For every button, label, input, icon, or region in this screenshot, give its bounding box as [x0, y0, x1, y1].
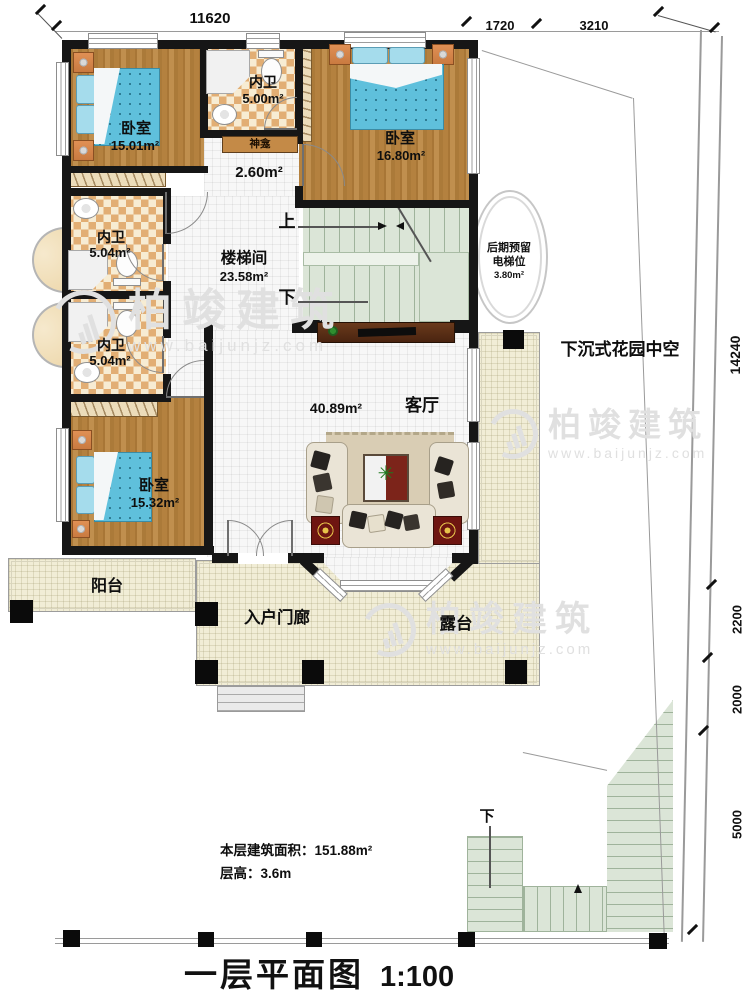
door-leaf	[264, 128, 297, 130]
nightstand	[72, 520, 90, 538]
label-stair-down: 下	[276, 288, 298, 308]
label-bath-low-name: 内卫	[81, 337, 141, 354]
sofa-cushion	[349, 511, 368, 530]
outdoor-stair-void	[523, 752, 607, 886]
bed-pillow	[352, 47, 388, 64]
label-elevator-line2: 电梯位	[474, 256, 544, 270]
label-bath-mid-name: 内卫	[81, 229, 141, 246]
sink-bath-top	[212, 104, 237, 125]
dim-label-3210: 3210	[568, 18, 620, 34]
dim-label-5000: 5000	[730, 802, 745, 848]
dim-label-2200: 2200	[730, 597, 745, 643]
dim-label-2000: 2000	[730, 677, 745, 723]
window-bedroom1-top	[88, 33, 158, 49]
label-bedroom3-name: 卧室	[122, 477, 186, 495]
sofa-cushion	[315, 495, 334, 514]
label-outdoor-stair-down: 下	[476, 808, 498, 826]
bed-pillow	[76, 456, 95, 484]
label-bath-mid-area: 5.04m²	[78, 245, 142, 261]
nightstand	[329, 44, 351, 65]
column	[503, 330, 524, 349]
label-stairhall-name: 楼梯间	[202, 250, 286, 269]
column	[10, 600, 33, 623]
watermark-url: www.baijunjz.com	[548, 445, 708, 461]
label-bath-low-area: 5.04m²	[78, 353, 142, 369]
label-stairhall-area: 23.58m²	[204, 269, 284, 285]
wall-stair-top	[295, 200, 478, 208]
site-line-bottom-1	[55, 938, 669, 939]
porch-steps	[217, 686, 305, 712]
column	[649, 933, 667, 949]
side-table-right	[433, 516, 462, 545]
shrine-table: 神龛	[222, 136, 298, 153]
wall-bedroom3-bottom	[62, 546, 214, 555]
wall-bath-mid-top	[62, 188, 170, 196]
label-stair-up: 上	[276, 212, 298, 232]
window-bath-top	[246, 33, 280, 49]
nightstand	[73, 140, 94, 161]
site-line-diag-top	[482, 50, 633, 99]
summary-area: 本层建筑面积：151.88m²	[220, 843, 440, 859]
label-living-name: 客厅	[390, 396, 454, 416]
window-bedroom2-right	[467, 58, 480, 174]
watermark-brand: 柏竣建筑	[548, 408, 708, 443]
summary-floor-height: 层高：3.6m	[220, 866, 380, 882]
label-balcony: 阳台	[75, 577, 139, 596]
toilet-tank	[113, 302, 141, 310]
label-bedroom2-area: 16.80m²	[360, 148, 442, 164]
nightstand	[432, 44, 454, 65]
sofa-cushion	[367, 514, 386, 533]
label-bedroom1-name: 卧室	[106, 120, 166, 138]
stair-break-arrow-left	[396, 222, 404, 230]
label-shrine-area: 2.60m²	[224, 164, 294, 182]
bed-pillow	[389, 47, 425, 64]
drawing-title-scale: 1:100	[380, 961, 454, 994]
side-table-left	[311, 516, 340, 545]
label-elevator-line1: 后期预留	[474, 242, 544, 256]
sofa-cushion	[403, 514, 420, 531]
label-living-area: 40.89m²	[296, 400, 376, 417]
bay-basin-lower	[32, 302, 66, 368]
window-living-right-1	[467, 348, 480, 422]
outdoor-stair-arrow	[574, 884, 582, 893]
outdoor-stair-bottom-flight	[523, 886, 607, 932]
label-garden: 下沉式花园中空	[538, 340, 702, 360]
dim-tick	[687, 924, 698, 935]
table-plant: ✳	[374, 462, 398, 486]
leader-top-right	[658, 15, 716, 32]
nightstand	[73, 52, 94, 73]
window-bedroom3-left	[56, 428, 69, 522]
stair-treads-upper	[309, 204, 469, 252]
label-elevator: 后期预留 电梯位 3.80m²	[474, 242, 544, 281]
column	[302, 660, 324, 684]
column	[198, 932, 214, 947]
bed-pillow	[76, 105, 96, 134]
dim-tick	[706, 579, 717, 590]
door-leaf	[302, 144, 304, 186]
dim-label-14240: 14240	[727, 320, 743, 390]
leader-top-left	[37, 13, 62, 39]
site-line-right-a	[681, 30, 702, 942]
wall-bath-divider	[62, 291, 171, 299]
stair-landing-2	[419, 252, 469, 322]
door-leaf	[227, 520, 229, 556]
label-bedroom3-area: 15.32m²	[114, 495, 196, 511]
label-bath-top-area: 5.00m²	[231, 91, 295, 107]
door-leaf	[165, 192, 167, 234]
cabinet-plant	[328, 326, 338, 336]
dim-label-11620: 11620	[168, 10, 252, 28]
dim-tick	[35, 4, 46, 15]
wall-bath-low-bottom	[62, 394, 171, 402]
label-bedroom1-area: 15.01m²	[100, 138, 170, 154]
outdoor-stair-left-flight	[467, 836, 523, 932]
site-line-bottom-2	[55, 943, 669, 944]
dim-tick	[531, 18, 542, 29]
wall-corridor-living	[204, 324, 213, 555]
column	[195, 602, 218, 626]
dim-tick	[51, 20, 62, 31]
sofa-cushion	[437, 481, 456, 500]
site-line-right-b	[702, 36, 722, 942]
outdoor-stair-rail	[489, 826, 491, 888]
bay-basin-upper	[32, 227, 66, 293]
toilet-tank	[258, 50, 284, 58]
door-leaf	[162, 244, 164, 281]
drawing-title: 一层平面图 1:100	[182, 948, 464, 997]
wall-bedroom1-bottom	[62, 166, 208, 173]
stair-down-line	[298, 301, 368, 303]
terrace-strip-floor	[478, 332, 540, 564]
toilet-bowl	[116, 310, 138, 337]
door-leaf	[162, 336, 164, 373]
sink-bath-mid	[73, 198, 99, 219]
label-terrace: 露台	[426, 615, 486, 635]
column	[505, 660, 527, 684]
floor-plan-canvas: 神龛 ✳	[0, 0, 750, 997]
label-bedroom2-name: 卧室	[368, 130, 432, 148]
stair-up-arrow	[378, 222, 387, 230]
drawing-title-name: 一层平面图	[184, 948, 364, 996]
toilet-tank	[113, 278, 141, 286]
column	[195, 660, 218, 684]
bed-pillow	[76, 486, 95, 514]
door-leaf	[291, 520, 293, 556]
column	[306, 932, 322, 947]
label-bath-top-name: 内卫	[233, 74, 293, 91]
label-porch: 入户门廊	[233, 609, 321, 629]
stair-landing	[303, 252, 419, 266]
column	[63, 930, 80, 947]
window-bedroom2-top	[344, 32, 426, 48]
column	[458, 932, 475, 947]
bed-pillow	[76, 75, 96, 104]
wardrobe-bedroom3	[70, 400, 158, 417]
label-elevator-area: 3.80m²	[474, 270, 544, 282]
window-bedroom1-left	[56, 62, 69, 156]
sofa-cushion	[312, 472, 332, 492]
nightstand	[72, 430, 92, 450]
dim-label-1720: 1720	[477, 18, 523, 34]
dim-tick	[461, 16, 472, 27]
stair-up-line	[298, 226, 378, 228]
wall-baths-right-b	[163, 281, 171, 338]
door-leaf	[166, 396, 204, 398]
